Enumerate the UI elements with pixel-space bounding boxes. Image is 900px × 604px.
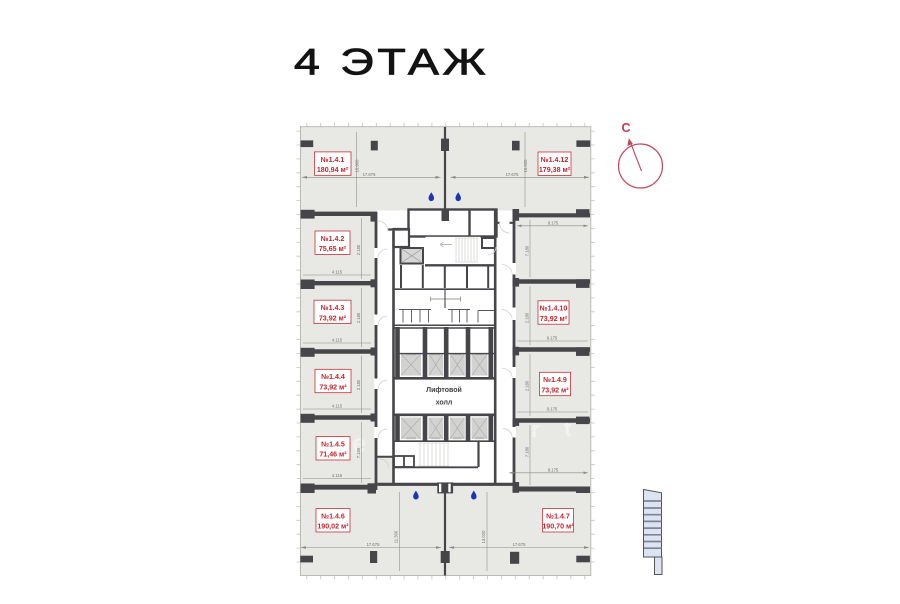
svg-text:17.675: 17.675: [363, 172, 376, 177]
svg-text:7.180: 7.180: [525, 446, 530, 457]
svg-text:10.900: 10.900: [355, 159, 360, 172]
svg-text:№1.4.4: №1.4.4: [321, 373, 345, 381]
svg-text:4.115: 4.115: [332, 338, 343, 343]
svg-text:2.180: 2.180: [525, 380, 530, 391]
svg-text:№1.4.2: №1.4.2: [321, 235, 345, 243]
svg-text:190,70 м²: 190,70 м²: [542, 523, 574, 531]
svg-text:2.180: 2.180: [356, 312, 361, 323]
svg-text:2.180: 2.180: [356, 244, 361, 255]
svg-text:11.300: 11.300: [394, 530, 399, 543]
svg-text:17.675: 17.675: [506, 172, 519, 177]
svg-text:17.675: 17.675: [513, 542, 526, 547]
svg-text:2.180: 2.180: [525, 312, 530, 323]
svg-text:179,38 м²: 179,38 м²: [539, 166, 571, 174]
svg-text:4 ЭТАЖ: 4 ЭТАЖ: [294, 41, 489, 83]
svg-text:№1.4.12: №1.4.12: [541, 156, 569, 164]
svg-text:13.020: 13.020: [481, 530, 486, 543]
svg-text:холл: холл: [436, 400, 453, 407]
svg-text:73,92 м²: 73,92 м²: [319, 383, 347, 391]
svg-text:№1.4.1: №1.4.1: [321, 156, 345, 164]
svg-text:16.600: 16.600: [523, 159, 528, 172]
svg-text:№1.4.9: №1.4.9: [543, 376, 567, 384]
svg-text:9.175: 9.175: [548, 467, 559, 472]
svg-text:С: С: [621, 121, 630, 135]
svg-text:9.175: 9.175: [548, 220, 559, 225]
svg-text:2.180: 2.180: [356, 379, 361, 390]
svg-text:№1.4.10: №1.4.10: [540, 305, 568, 313]
svg-text:9.175: 9.175: [547, 407, 558, 412]
svg-text:190,02 м²: 190,02 м²: [317, 523, 349, 531]
svg-text:73,92 м²: 73,92 м²: [319, 314, 347, 322]
svg-text:№1.4.5: №1.4.5: [321, 441, 345, 449]
svg-text:180,94 м²: 180,94 м²: [317, 166, 349, 174]
svg-text:4.115: 4.115: [332, 404, 343, 409]
svg-text:№1.4.3: №1.4.3: [321, 304, 345, 312]
svg-text:73,92 м²: 73,92 м²: [540, 315, 568, 323]
svg-text:71,46 м²: 71,46 м²: [319, 451, 347, 459]
svg-text:7.180: 7.180: [525, 245, 530, 256]
svg-text:4.115: 4.115: [332, 270, 343, 275]
svg-text:№1.4.7: №1.4.7: [546, 513, 570, 521]
svg-text:№1.4.6: №1.4.6: [321, 513, 345, 521]
svg-text:75,65 м²: 75,65 м²: [319, 245, 347, 253]
svg-text:73,92 м²: 73,92 м²: [541, 386, 569, 394]
svg-text:Лифтовой: Лифтовой: [426, 386, 462, 394]
svg-text:17.675: 17.675: [367, 542, 380, 547]
svg-text:4.115: 4.115: [332, 473, 343, 478]
svg-text:7.180: 7.180: [356, 447, 361, 458]
svg-text:9.175: 9.175: [547, 336, 558, 341]
